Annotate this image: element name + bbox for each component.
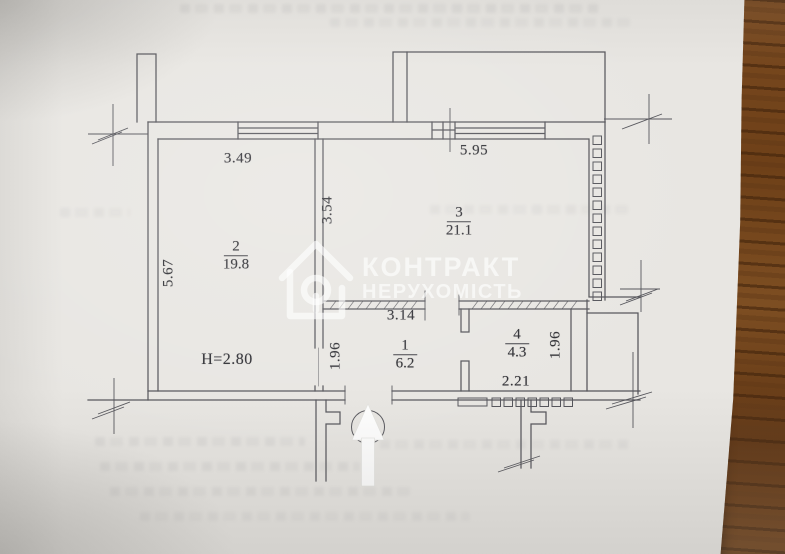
room-1-number: 1	[393, 337, 417, 355]
room-1-label: 1 6.2	[393, 337, 417, 373]
watermark-line1: КОНТРАКТ	[362, 254, 523, 281]
room-2-label: 2 19.8	[223, 238, 249, 274]
axis-tick-bottom-left	[92, 378, 130, 434]
dim-room4-depth: 1.96	[548, 331, 565, 359]
window-room3-icon	[455, 122, 545, 139]
room-4-area: 4.3	[508, 345, 527, 362]
axis-tick-stub-right	[498, 456, 540, 472]
glazing-squares-right	[593, 136, 602, 301]
dim-room4-width: 2.21	[502, 374, 530, 391]
wall-stub-left-below	[316, 400, 340, 481]
window-room2-icon	[238, 122, 318, 139]
axis-tick-top-left	[88, 104, 148, 166]
room-3-number: 3	[447, 204, 471, 222]
up-arrow-icon	[352, 404, 384, 486]
glazing-squares-bottom	[458, 398, 573, 407]
axis-tick-mid-right	[620, 260, 660, 312]
room-2-area: 19.8	[223, 257, 249, 274]
watermark: КОНТРАКТ НЕРУХОМІСТЬ	[272, 232, 523, 324]
room-2-number: 2	[224, 238, 248, 256]
house-outline-icon	[272, 232, 358, 324]
wall-neighbor-rect	[587, 313, 638, 394]
wall-room4-right	[571, 300, 587, 391]
axis-tick-bottom-right	[606, 352, 652, 428]
room-4-label: 4 4.3	[505, 326, 529, 362]
dim-partition-2-3: 3.54	[320, 196, 337, 224]
room-4-number: 4	[505, 326, 529, 344]
dim-room3-width: 5.95	[460, 143, 488, 160]
dim-ceiling-height: H=2.80	[201, 351, 253, 369]
dim-room2-width: 3.49	[224, 151, 252, 168]
wall-vent-stub	[137, 54, 156, 122]
dim-room2-depth: 5.67	[161, 259, 178, 287]
axis-tick-top-right	[604, 94, 672, 144]
floorplan-photo: КОНТРАКТ НЕРУХОМІСТЬ 3.49 5.95 5.67 3.54…	[0, 0, 785, 554]
balcony-outline	[393, 52, 605, 122]
balcony-door-icon	[432, 122, 455, 139]
dim-hall-depth: 1.96	[328, 342, 345, 370]
room-1-area: 6.2	[396, 356, 415, 373]
watermark-line2: НЕРУХОМІСТЬ	[362, 281, 523, 303]
